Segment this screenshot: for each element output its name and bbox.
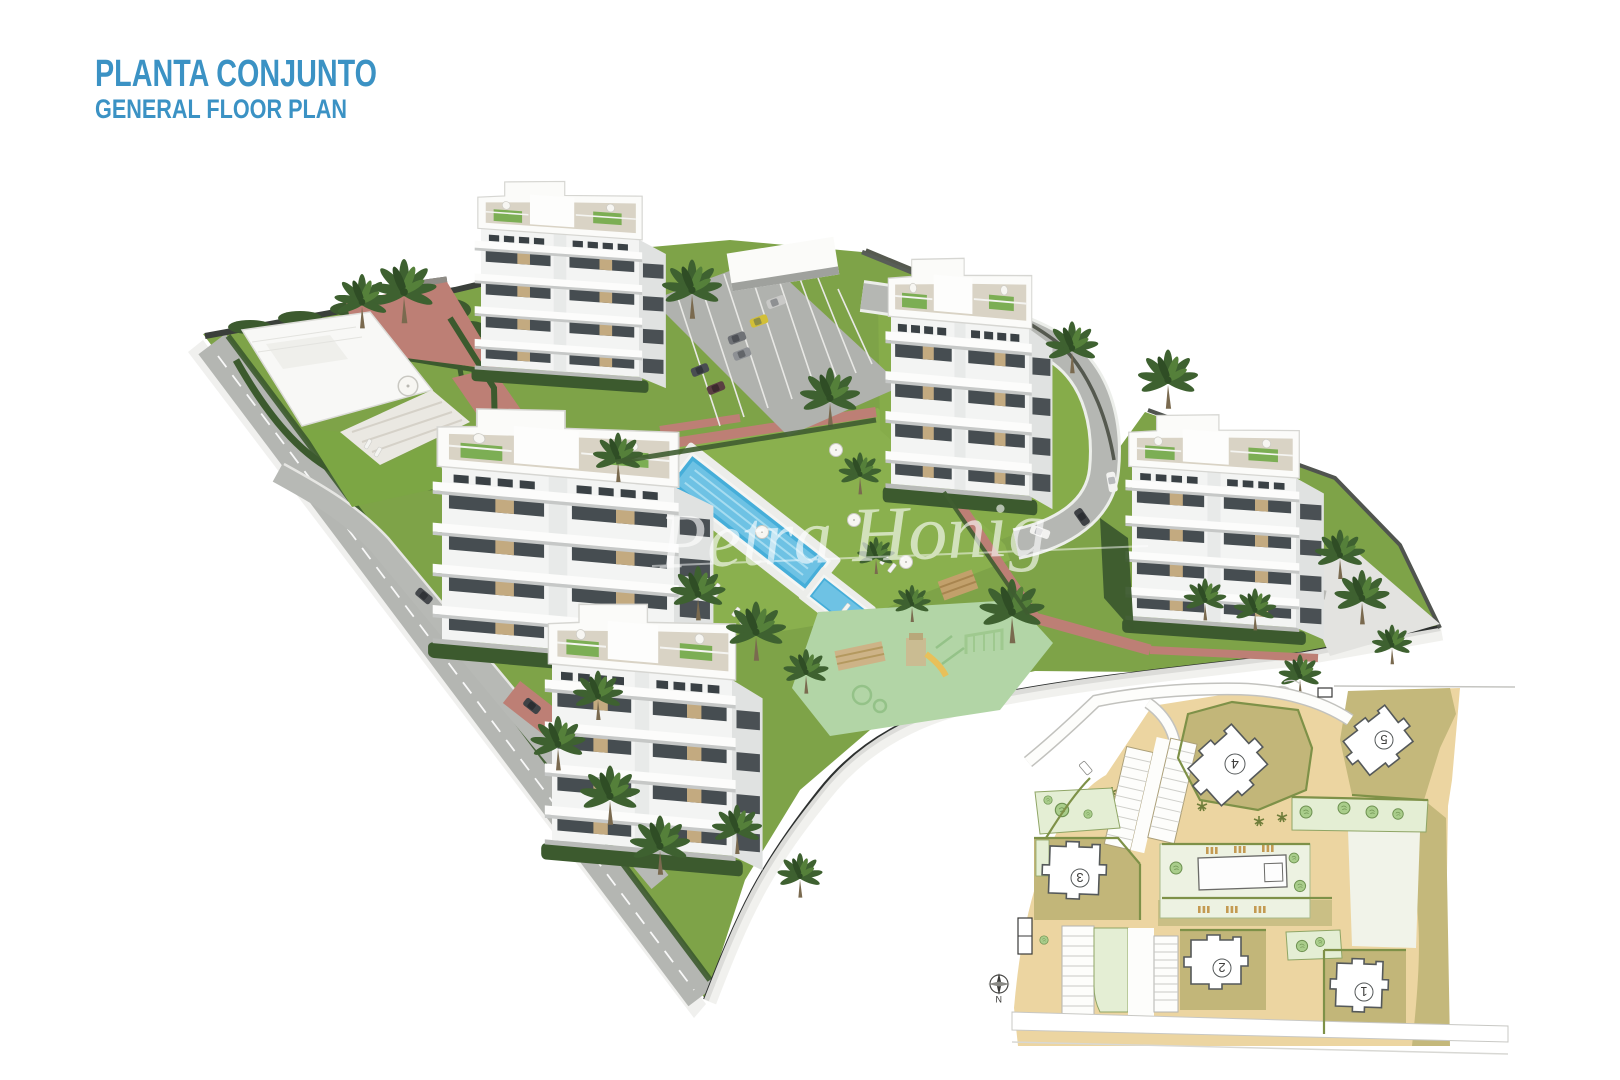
svg-text:4: 4: [1231, 756, 1239, 772]
svg-text:2: 2: [1218, 960, 1225, 975]
svg-text:Petra Honig: Petra Honig: [657, 485, 1049, 586]
svg-text:PLANTA CONJUNTO: PLANTA CONJUNTO: [95, 53, 377, 95]
svg-text:N: N: [996, 994, 1003, 1004]
svg-text:GENERAL FLOOR PLAN: GENERAL FLOOR PLAN: [95, 94, 347, 124]
svg-text:1: 1: [1360, 984, 1367, 999]
svg-text:3: 3: [1076, 870, 1083, 885]
svg-text:5: 5: [1380, 732, 1387, 747]
